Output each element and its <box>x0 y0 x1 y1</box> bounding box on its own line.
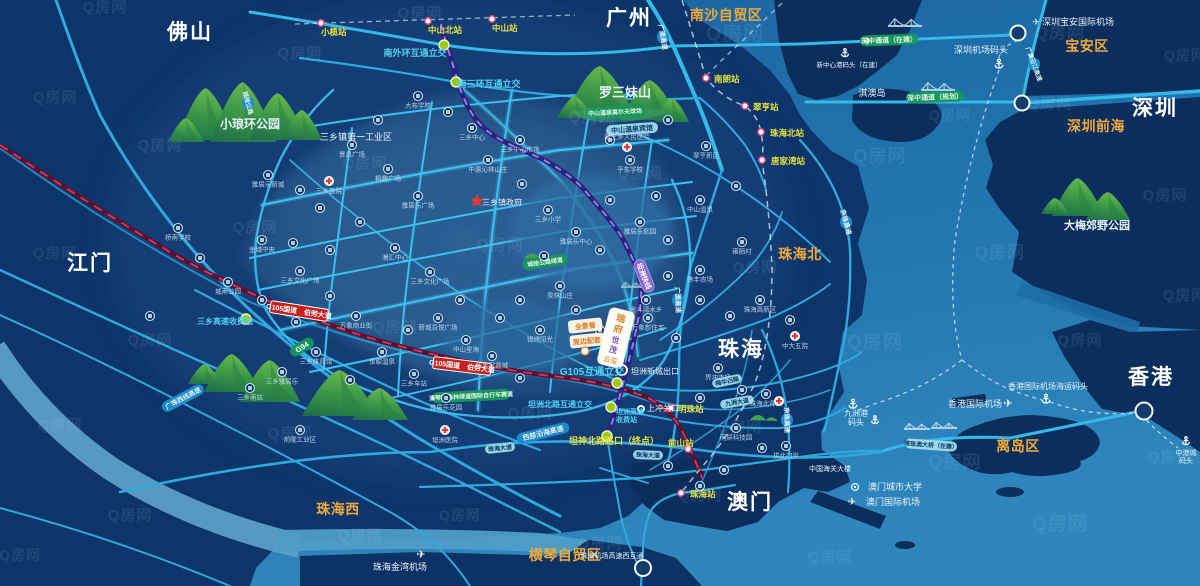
svg-text:潮汇中心: 潮汇中心 <box>382 253 409 262</box>
svg-text:三乡镇政府: 三乡镇政府 <box>482 197 522 207</box>
svg-text:Q房网: Q房网 <box>733 258 778 276</box>
svg-text:香港国际机场海运码头: 香港国际机场海运码头 <box>1008 381 1088 391</box>
svg-text:香港国际机场: 香港国际机场 <box>948 398 1002 409</box>
svg-text:中山温泉: 中山温泉 <box>687 205 714 214</box>
svg-text:Q房网: Q房网 <box>1035 22 1085 42</box>
svg-text:Q房网: Q房网 <box>847 330 903 353</box>
svg-text:Q房网: Q房网 <box>508 404 553 422</box>
svg-text:Q房网: Q房网 <box>33 244 78 262</box>
svg-text:Q房网: Q房网 <box>338 526 383 544</box>
svg-text:Q房网: Q房网 <box>1164 47 1200 63</box>
svg-text:金域中央: 金域中央 <box>249 245 276 254</box>
svg-text:Q房网: Q房网 <box>108 506 153 524</box>
svg-text:雅居乐熙园: 雅居乐熙园 <box>624 227 657 236</box>
svg-text:翠亨站: 翠亨站 <box>753 102 779 112</box>
svg-text:三乡中心: 三乡中心 <box>459 133 486 142</box>
svg-text:新中心港码头（在建）: 新中心港码头（在建） <box>817 60 882 69</box>
svg-text:收费站: 收费站 <box>616 415 637 424</box>
svg-text:珠海西: 珠海西 <box>316 501 360 517</box>
svg-text:泉眼温泉: 泉眼温泉 <box>369 357 396 366</box>
svg-text:南朗站: 南朗站 <box>714 74 740 84</box>
svg-text:Q房网: Q房网 <box>928 451 981 472</box>
svg-text:澳门国际机场: 澳门国际机场 <box>866 496 920 507</box>
svg-text:中山星海: 中山星海 <box>453 345 480 354</box>
svg-text:城南公园: 城南公园 <box>215 287 241 296</box>
svg-text:拱北口岸: 拱北口岸 <box>773 451 800 460</box>
svg-text:三乡文化广场: 三乡文化广场 <box>281 276 321 285</box>
svg-text:三乡中心市场: 三乡中心市场 <box>501 145 541 154</box>
svg-text:三乡医院: 三乡医院 <box>316 186 343 195</box>
svg-text:深圳前海: 深圳前海 <box>1067 118 1125 134</box>
svg-text:珠海机场高速西互通: 珠海机场高速西互通 <box>581 551 644 560</box>
svg-text:Q房网: Q房网 <box>128 331 173 349</box>
svg-text:Q房网: Q房网 <box>1032 512 1088 535</box>
svg-text:九洲港: 九洲港 <box>844 408 868 418</box>
svg-text:三乡文化广场: 三乡文化广场 <box>411 277 451 286</box>
svg-text:罗三妹山: 罗三妹山 <box>599 85 651 100</box>
svg-text:Q房网: Q房网 <box>1058 331 1103 349</box>
svg-text:Q房网: Q房网 <box>1148 448 1193 466</box>
svg-text:✈: ✈ <box>416 549 425 561</box>
svg-text:锦绣阳光: 锦绣阳光 <box>527 335 554 344</box>
svg-text:✈: ✈ <box>848 497 856 508</box>
svg-text:伟丰农场: 伟丰农场 <box>687 275 714 284</box>
svg-text:珠海: 珠海 <box>718 337 764 361</box>
svg-text:坦洲高速: 坦洲高速 <box>616 407 644 416</box>
svg-text:G105互通立交: G105互通立交 <box>560 365 624 378</box>
svg-text:Q房网: Q房网 <box>343 154 388 172</box>
svg-text:上冲关口: 上冲关口 <box>647 403 679 413</box>
svg-text:新三乡人民医院: 新三乡人民医院 <box>604 132 650 141</box>
svg-text:雅居乐中心: 雅居乐中心 <box>560 237 593 246</box>
svg-text:Q房网: Q房网 <box>613 308 658 326</box>
svg-text:三乡雅居乐: 三乡雅居乐 <box>266 377 299 386</box>
svg-text:Q房网: Q房网 <box>476 235 523 254</box>
svg-text:小琅环公园: 小琅环公园 <box>220 116 280 131</box>
svg-text:中惠沁林山庄: 中惠沁林山庄 <box>469 165 509 174</box>
svg-text:Q房网: Q房网 <box>578 534 623 552</box>
svg-text:码头: 码头 <box>848 417 864 427</box>
svg-text:大布学校: 大布学校 <box>405 101 432 110</box>
svg-text:界冲市场: 界冲市场 <box>705 373 732 382</box>
svg-text:中国海关大楼: 中国海关大楼 <box>809 464 851 473</box>
svg-text:新城吾悦广场: 新城吾悦广场 <box>419 323 459 332</box>
svg-text:唐家湾站: 唐家湾站 <box>771 156 806 166</box>
svg-text:Q房网: Q房网 <box>398 4 443 22</box>
svg-text:Q房网: Q房网 <box>1163 286 1200 304</box>
svg-text:Q房网: Q房网 <box>975 242 1025 262</box>
svg-text:Q房网: Q房网 <box>233 218 278 236</box>
svg-text:Q房网: Q房网 <box>278 44 323 62</box>
svg-text:翠亨新区: 翠亨新区 <box>693 151 720 160</box>
svg-text:Q房网: Q房网 <box>678 486 723 504</box>
svg-text:Q房网: Q房网 <box>0 547 41 563</box>
svg-text:三乡车站: 三乡车站 <box>401 379 428 388</box>
svg-text:中大五院: 中大五院 <box>782 341 809 350</box>
svg-text:桐趣广场: 桐趣广场 <box>375 174 402 183</box>
svg-text:中山站: 中山站 <box>492 23 518 33</box>
svg-text:深圳: 深圳 <box>1132 97 1178 120</box>
svg-text:Q房网: Q房网 <box>568 107 615 126</box>
svg-text:澳门城市大学: 澳门城市大学 <box>868 481 922 492</box>
svg-text:中山北站: 中山北站 <box>428 25 463 35</box>
svg-text:香港: 香港 <box>1128 365 1174 389</box>
svg-text:Q房网: Q房网 <box>1143 186 1188 204</box>
svg-text:广州: 广州 <box>606 6 652 30</box>
svg-text:Q房网: Q房网 <box>268 424 313 442</box>
svg-text:华丰家具城: 华丰家具城 <box>476 361 509 370</box>
svg-text:明珠站: 明珠站 <box>678 404 704 414</box>
svg-text:Q房网: Q房网 <box>853 145 906 166</box>
svg-text:雅居乐广场: 雅居乐广场 <box>402 201 435 210</box>
svg-text:三乡镇第一工业区: 三乡镇第一工业区 <box>320 131 392 142</box>
svg-text:离岛区: 离岛区 <box>996 438 1040 454</box>
svg-text:Q房网: Q房网 <box>1028 94 1073 112</box>
svg-text:泉林山庄: 泉林山庄 <box>547 291 574 300</box>
svg-text:南外环互通立交: 南外环互通立交 <box>383 47 446 58</box>
svg-text:小榄站: 小榄站 <box>320 27 347 37</box>
svg-text:澳门: 澳门 <box>727 490 773 514</box>
svg-text:Q房网: Q房网 <box>33 88 78 106</box>
svg-text:Q房网: Q房网 <box>83 0 128 16</box>
svg-text:Q房网: Q房网 <box>618 164 663 182</box>
svg-text:佛山: 佛山 <box>166 20 213 44</box>
svg-text:✈: ✈ <box>1003 398 1012 410</box>
svg-text:Q房网: Q房网 <box>373 318 418 336</box>
svg-text:Q房网: Q房网 <box>439 507 481 523</box>
svg-text:大梅郊野公园: 大梅郊野公园 <box>1064 218 1130 232</box>
svg-text:Q房网: Q房网 <box>706 21 765 45</box>
svg-text:Q房网: Q房网 <box>138 136 183 154</box>
svg-text:雅居乐新城: 雅居乐新城 <box>252 180 285 189</box>
svg-text:坦洲医院: 坦洲医院 <box>432 435 459 444</box>
svg-text:坦神北路路口（终点）: 坦神北路路口（终点） <box>569 435 659 446</box>
svg-text:桥南学校: 桥南学校 <box>165 233 192 242</box>
svg-text:Q房网: Q房网 <box>808 548 853 566</box>
svg-text:三乡南站: 三乡南站 <box>237 393 264 402</box>
svg-text:万象商业街: 万象商业街 <box>340 321 373 330</box>
svg-text:雍陌村: 雍陌村 <box>732 247 752 256</box>
svg-text:✈: ✈ <box>863 36 872 48</box>
svg-text:南沙自贸区: 南沙自贸区 <box>690 7 763 23</box>
svg-text:珠海高新区: 珠海高新区 <box>744 305 777 314</box>
svg-text:坦洲新城出口: 坦洲新城出口 <box>631 366 679 376</box>
svg-text:Q房网: Q房网 <box>929 107 971 123</box>
svg-text:雅居乐花园: 雅居乐花园 <box>430 403 463 412</box>
svg-text:南三环互通立交: 南三环互通立交 <box>457 78 520 89</box>
svg-text:三乡高速收费站: 三乡高速收费站 <box>197 316 253 326</box>
svg-text:Q房网: Q房网 <box>718 418 763 436</box>
svg-text:三乡体育馆: 三乡体育馆 <box>300 357 333 366</box>
svg-text:珠海北: 珠海北 <box>778 246 822 262</box>
svg-text:珠海金湾机场: 珠海金湾机场 <box>373 561 427 572</box>
svg-text:珠海北站: 珠海北站 <box>770 128 805 138</box>
svg-text:深圳机场码头: 深圳机场码头 <box>954 44 1008 55</box>
svg-text:前山站: 前山站 <box>668 438 694 448</box>
svg-text:三乡小学: 三乡小学 <box>535 215 562 224</box>
svg-text:淇澳岛: 淇澳岛 <box>858 87 885 98</box>
svg-text:Q房网: Q房网 <box>38 416 83 434</box>
